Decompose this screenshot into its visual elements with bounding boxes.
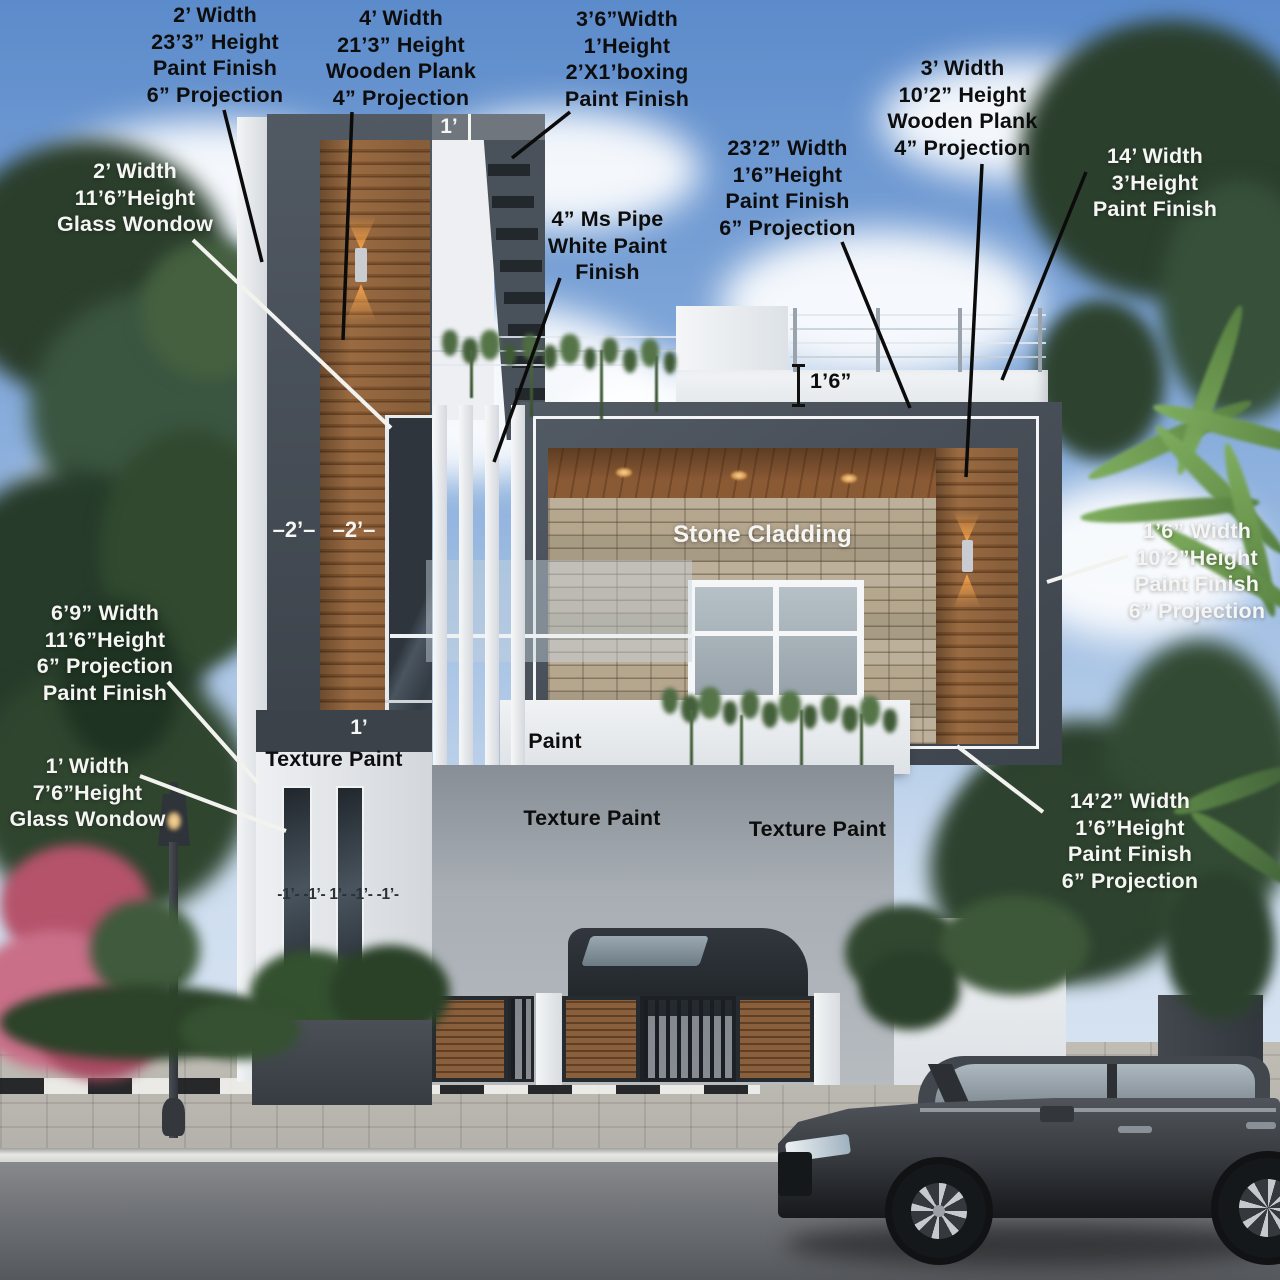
- railing-post: [958, 308, 962, 372]
- car-beltline: [920, 1108, 1276, 1112]
- car-body: [778, 1098, 1280, 1218]
- annotation-fin-left-tall: 2’ Width 23’3” Height Paint Finish 6” Pr…: [135, 2, 295, 109]
- dim-tick-top: [468, 114, 471, 142]
- window-mullion: [773, 587, 779, 695]
- gate-wood-panel: [736, 996, 814, 1082]
- dim-2ft-b: –2’–: [324, 517, 384, 543]
- shrub: [940, 895, 1090, 995]
- railing-post: [793, 308, 797, 372]
- street-lamp-base: [162, 1098, 185, 1136]
- hanging-plants: [662, 688, 678, 714]
- annotation-projection-left: 6’9” Width 11’6”Height 6” Projection Pai…: [30, 600, 180, 707]
- annotation-ms-pipe: 4” Ms Pipe White Paint Finish: [540, 206, 675, 286]
- annotation-parapet-right: 14’ Width 3’Height Paint Finish: [1085, 143, 1225, 223]
- wall-lamp-right: [962, 540, 973, 572]
- railing-line: [790, 328, 1046, 330]
- wall-lamp-left: [355, 248, 367, 282]
- plant-strand: [600, 350, 603, 420]
- parapet-slot: [492, 196, 534, 208]
- annotation-fin-right-column: 1’6” Width 10’2”Height Paint Finish 6” P…: [1122, 518, 1272, 625]
- downlight: [616, 468, 632, 477]
- annotation-stone-cladding: Stone Cladding: [660, 520, 865, 550]
- annotation-glass-window-upper: 2’ Width 11’6”Height Glass Wondow: [45, 158, 225, 238]
- parapet-slot: [504, 292, 546, 304]
- plant-strand: [470, 350, 473, 398]
- car-hub: [933, 1205, 945, 1217]
- railing-post: [1038, 308, 1042, 372]
- glass-railing-left: [432, 330, 676, 380]
- window-divider: [385, 700, 432, 703]
- glass-railing-right: [790, 308, 1046, 372]
- gate-pillar: [536, 993, 562, 1085]
- railing-line: [432, 350, 676, 352]
- dim-pillars-row: -1’- -1’- 1’- -1’- -1’-: [258, 886, 418, 904]
- gate-pillar: [814, 993, 840, 1085]
- railing-line: [790, 314, 1046, 316]
- slit-window: [336, 786, 364, 974]
- gate-bars: [508, 996, 534, 1082]
- dim-1ft-band: 1’: [344, 716, 374, 740]
- annotation-dim-roof: 1’6”: [810, 368, 874, 395]
- wood-plank-column-right: [936, 448, 1018, 744]
- parapet-slot: [496, 228, 538, 240]
- main-gate-bars: [640, 996, 736, 1082]
- railing-line: [790, 356, 1046, 358]
- hanging-plants: [442, 330, 458, 356]
- car-wheel-front: [892, 1164, 986, 1258]
- parapet-slot: [488, 164, 530, 176]
- railing-line: [432, 364, 676, 366]
- annotation-texture-paint-right: Texture Paint: [740, 816, 895, 843]
- dim-1ft-top: 1’: [434, 115, 464, 139]
- plant-strand: [530, 355, 533, 417]
- downlight: [731, 471, 747, 480]
- slit-window: [282, 786, 312, 974]
- car-shadow: [785, 1222, 1280, 1266]
- railing-line: [432, 336, 676, 338]
- shrub: [860, 950, 960, 1030]
- roof-box: [676, 306, 788, 378]
- hedge: [180, 1000, 300, 1060]
- car-grille: [778, 1152, 812, 1196]
- dim-cap: [792, 404, 805, 407]
- annotation-wooden-plank-right: 3’ Width 10’2” Height Wooden Plank 4” Pr…: [880, 55, 1045, 162]
- annotation-texture-paint-left: Texture Paint: [258, 746, 410, 773]
- car-rim: [1239, 1179, 1280, 1237]
- annotation-paint-center: Paint: [515, 728, 595, 755]
- annotation-wooden-plank-left: 4’ Width 21’3” Height Wooden Plank 4” Pr…: [322, 5, 480, 112]
- gate-wood-panel: [562, 996, 640, 1082]
- annotation-boxing-top: 3’6”Width 1’Height 2’X1’boxing Paint Fin…: [557, 6, 697, 113]
- window-transom: [695, 631, 857, 636]
- annotation-texture-paint-mid: Texture Paint: [518, 805, 666, 832]
- railing-line: [790, 342, 1046, 344]
- garage-car-windshield: [581, 936, 709, 966]
- parapet-slot: [500, 260, 542, 272]
- dim-line-roof: [797, 366, 800, 406]
- dim-2ft-a: –2’–: [264, 517, 324, 543]
- elevation-render: 2’ Width 23’3” Height Paint Finish 6” Pr…: [0, 0, 1280, 1280]
- upper-window: [688, 580, 864, 702]
- car-mirror: [1040, 1106, 1074, 1122]
- downlight: [841, 474, 857, 483]
- car-door-handle: [1118, 1126, 1152, 1133]
- dim-cap: [792, 364, 805, 367]
- annotation-glass-window-lower: 1’ Width 7’6”Height Glass Wondow: [0, 753, 175, 833]
- plant-strand: [655, 356, 658, 412]
- annotation-fin-bottom-right: 14’2” Width 1’6”Height Paint Finish 6” P…: [1055, 788, 1205, 895]
- car-door-handle: [1246, 1122, 1276, 1129]
- annotation-parapet-front: 23’2” Width 1’6”Height Paint Finish 6” P…: [705, 135, 870, 242]
- railing-post: [876, 308, 880, 372]
